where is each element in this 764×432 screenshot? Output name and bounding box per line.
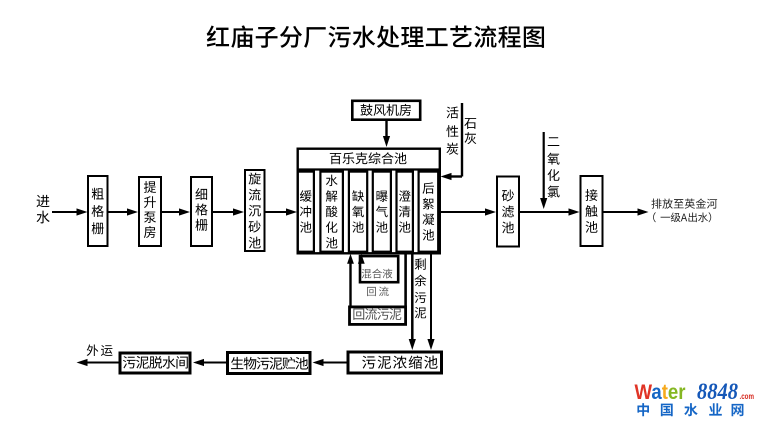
svg-text:8848: 8848 (697, 379, 738, 404)
svg-text:.com: .com (740, 391, 755, 401)
svg-text:Water: Water (635, 380, 687, 404)
